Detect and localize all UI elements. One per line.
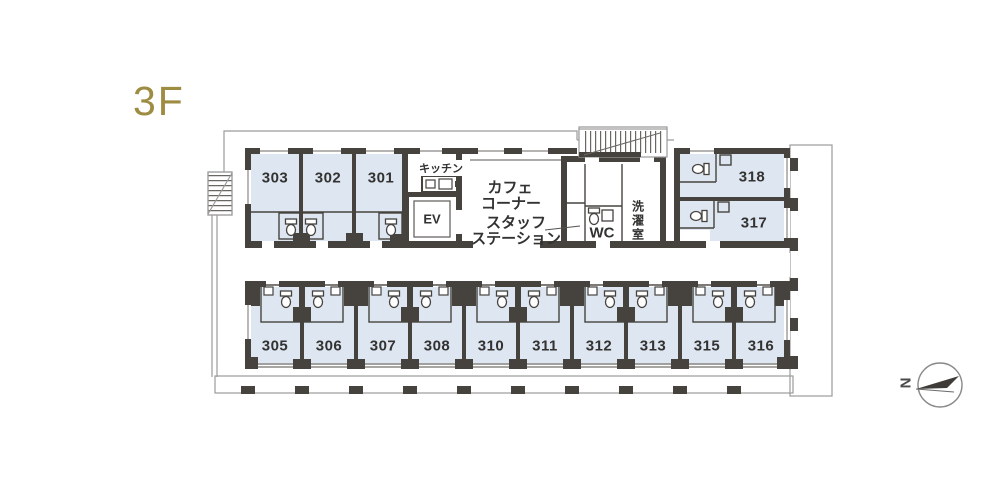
stairs-top [579,129,667,157]
floorplan-page: 3F [0,0,1000,480]
room-316-label: 316 [748,338,775,355]
toilet-icon [691,211,708,222]
staff-station-label-line2: ステーション [471,228,561,249]
elevator-label: EV [423,212,440,227]
room-317-label: 317 [741,215,768,232]
compass [916,363,962,407]
room-308-label: 308 [424,338,451,355]
room-318-label: 318 [739,169,766,186]
compass-north-label: N [898,378,915,389]
room-303-label: 303 [262,170,289,187]
room-313-label: 313 [640,338,667,355]
room-311-label: 311 [532,338,558,355]
toilet-icon [386,219,397,236]
toilet-icon [693,164,710,175]
room-315-label: 315 [694,338,721,355]
kitchen-label: キッチン [418,160,464,176]
toilet-icon [306,219,317,236]
wc-label: WC [590,225,615,242]
cafe-corner-label-line2: コーナー [481,193,541,214]
room-306-label: 306 [316,338,343,355]
toilet-icon [589,208,600,225]
room-310-label: 310 [478,338,505,355]
room-302-label: 302 [315,170,342,187]
room-305-label: 305 [262,338,289,355]
laundry-room-label: 洗濯室 [630,200,647,242]
room-312-label: 312 [586,338,613,355]
toilet-icon [286,219,297,236]
room-301-label: 301 [368,170,395,187]
room-307-label: 307 [370,338,397,355]
